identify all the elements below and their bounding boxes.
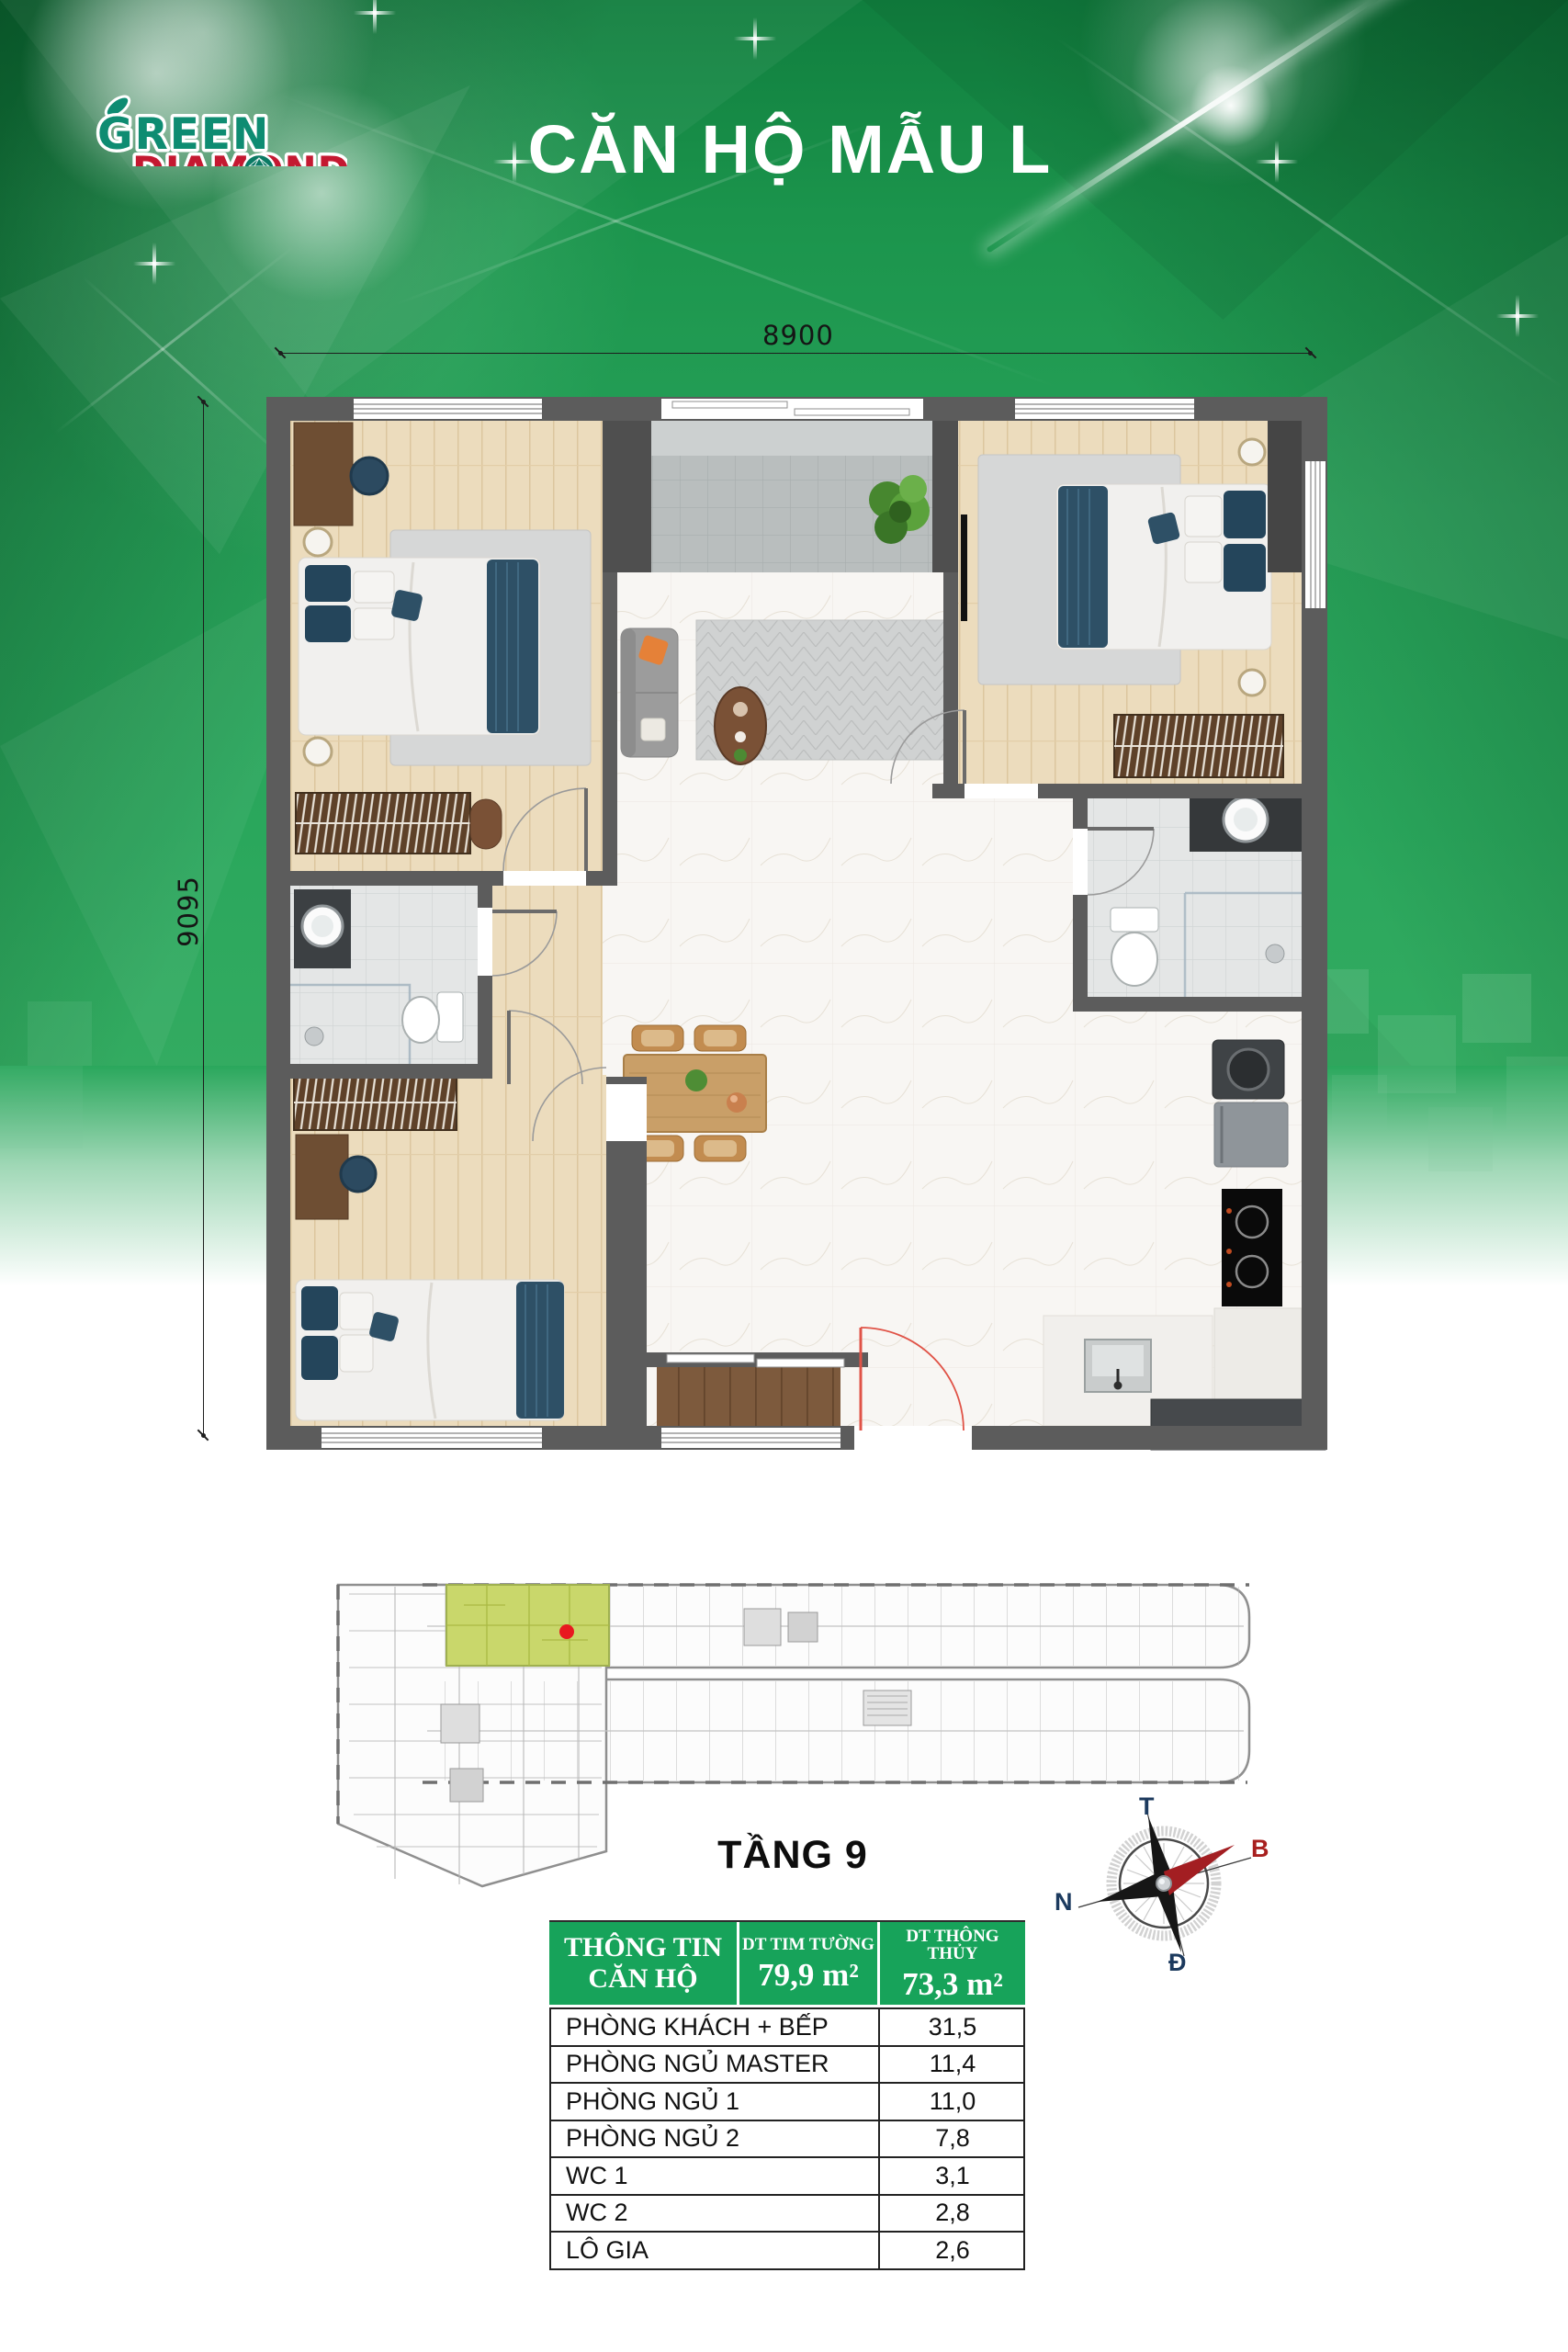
room-label: PHÒNG NGỦ 1	[551, 2084, 878, 2120]
gross-area-value: 79,9 m²	[758, 1959, 859, 1991]
highlighted-unit	[446, 1585, 609, 1666]
compass-rose: T B N Đ	[1047, 1787, 1277, 1980]
compass-south: N	[1055, 1888, 1073, 1917]
table-row: PHÒNG NGỦ 27,8	[551, 2121, 1023, 2159]
window	[1305, 461, 1325, 608]
net-area-label: DT THÔNG THỦY	[880, 1928, 1025, 1962]
room-area: 11,4	[878, 2047, 1025, 2083]
table-body: PHÒNG KHÁCH + BẾP31,5 PHÒNG NGỦ MASTER11…	[549, 2007, 1025, 2270]
desk-chair	[351, 458, 388, 494]
table-row: WC 13,1	[551, 2158, 1023, 2196]
page-title: CĂN HỘ MẪU L	[441, 110, 1139, 188]
table-row: PHÒNG NGỦ MASTER11,4	[551, 2047, 1023, 2085]
room-area: 2,6	[878, 2233, 1025, 2268]
room-label: PHÒNG NGỦ 2	[551, 2121, 878, 2157]
logo-word-diamond: DIAMOND	[132, 148, 347, 166]
room-label: WC 1	[551, 2158, 878, 2194]
compass-north: B	[1251, 1835, 1269, 1863]
table-row: PHÒNG NGỦ 111,0	[551, 2084, 1023, 2121]
table-row: WC 22,8	[551, 2196, 1023, 2233]
poster-page: { "brand": { "name_line1": "GREEN", "nam…	[0, 0, 1568, 2352]
apartment-info-table: THÔNG TIN CĂN HỘ DT TIM TƯỜNG 79,9 m² DT…	[549, 1920, 1025, 2270]
fridge	[1214, 1102, 1288, 1167]
header-net-area-cell: DT THÔNG THỦY 73,3 m²	[880, 1922, 1025, 2005]
compass-east: Đ	[1168, 1949, 1187, 1977]
brand-logo: GREEN DIAMOND	[44, 51, 347, 166]
room-label: WC 2	[551, 2196, 878, 2232]
unit-location-dot	[559, 1624, 574, 1639]
tv-panel	[961, 514, 967, 621]
apartment-floor-plan	[266, 397, 1327, 1453]
dimension-height-value: 9095	[173, 870, 204, 953]
room-label: PHÒNG KHÁCH + BẾP	[551, 2009, 878, 2045]
table-header: THÔNG TIN CĂN HỘ DT TIM TƯỜNG 79,9 m² DT…	[549, 1920, 1025, 2007]
room-area: 2,8	[878, 2196, 1025, 2232]
room-area: 3,1	[878, 2158, 1025, 2194]
floor-label: TẦNG 9	[641, 1833, 944, 1878]
gross-area-label: DT TIM TƯỜNG	[742, 1936, 874, 1953]
compass-west: T	[1139, 1792, 1155, 1821]
entry-door	[661, 399, 923, 419]
header-info-cell: THÔNG TIN CĂN HỘ	[549, 1922, 737, 2005]
window	[321, 1428, 542, 1448]
header-gross-area-cell: DT TIM TƯỜNG 79,9 m²	[739, 1922, 877, 2005]
dimension-line-width	[280, 353, 1311, 354]
room-area: 7,8	[878, 2121, 1025, 2157]
room-label: LÔ GIA	[551, 2233, 878, 2268]
window	[1015, 399, 1194, 419]
dimension-width-value: 8900	[762, 320, 834, 351]
net-area-value: 73,3 m²	[902, 1968, 1003, 2000]
desk-chair	[341, 1157, 376, 1192]
table-row: LÔ GIA2,6	[551, 2233, 1023, 2268]
room-label: PHÒNG NGỦ MASTER	[551, 2047, 878, 2083]
window	[661, 1428, 840, 1448]
room-area: 31,5	[878, 2009, 1025, 2045]
window	[354, 399, 542, 419]
room-area: 11,0	[878, 2084, 1025, 2120]
table-row: PHÒNG KHÁCH + BẾP31,5	[551, 2009, 1023, 2047]
